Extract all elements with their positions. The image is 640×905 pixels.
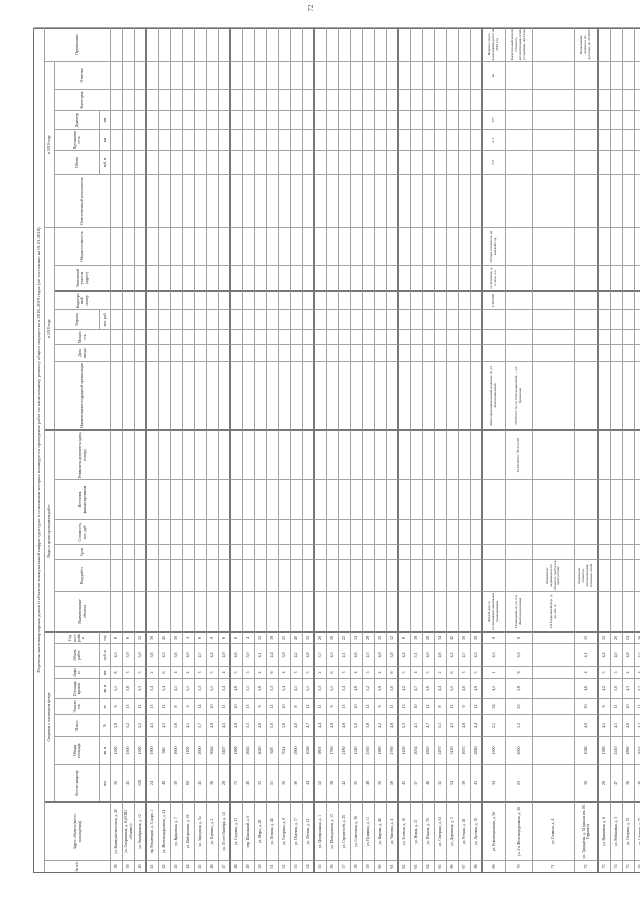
table-cell: 3,9: [123, 643, 135, 666]
table-cell: [255, 519, 267, 544]
table-cell: [599, 61, 611, 89]
table-cell: [135, 329, 147, 344]
table-cell: 3: [231, 666, 243, 678]
table-cell: 3,3: [267, 678, 279, 698]
table-cell: 4,4: [599, 643, 611, 666]
table-cell: [575, 61, 599, 89]
table-cell: [435, 290, 447, 309]
table-cell: 12: [387, 631, 399, 643]
table-cell: [207, 429, 219, 479]
table-cell: 6: [327, 666, 339, 678]
column-header: Реквизиты документа (дата, номер): [55, 429, 111, 479]
table-cell: [533, 309, 575, 329]
table-cell: 44: [303, 764, 315, 801]
table-cell: [423, 129, 435, 150]
table-cell: [447, 544, 459, 559]
table-cell: [207, 89, 219, 110]
table-cell: [435, 89, 447, 110]
table-cell: 5,8: [483, 150, 506, 174]
table-cell: [599, 544, 611, 559]
table-cell: 6: [231, 631, 243, 643]
table-cell: [387, 174, 399, 227]
table-cell: 5: [243, 666, 255, 678]
table-cell: [363, 479, 375, 519]
table-cell: [363, 519, 375, 544]
table-cell: ул. Тридцатая, д. 52 (школа им. М. Горьк…: [575, 801, 599, 860]
table-cell: 10: [411, 698, 423, 714]
table-cell: ул. Южная, д. 7б: [423, 801, 435, 860]
table-cell: [183, 361, 195, 429]
table-cell: 50: [255, 860, 267, 872]
table-cell: [135, 290, 147, 309]
table-cell: 2055: [635, 736, 640, 764]
table-cell: [315, 329, 327, 344]
table-cell: [219, 150, 231, 174]
table-cell: 69: [483, 860, 506, 872]
table-cell: [351, 290, 363, 309]
table-cell: 4,9: [375, 643, 387, 666]
table-cell: [375, 89, 387, 110]
table-cell: ул. Советская, д. 36: [351, 801, 363, 860]
table-cell: [111, 227, 123, 265]
table-cell: 8: [291, 698, 303, 714]
table-cell: [111, 265, 123, 290]
table-cell: [411, 27, 423, 61]
table-cell: ул. Революционная, д. 56: [483, 801, 506, 860]
column-header: Источник финансирования: [55, 479, 111, 519]
table-cell: [159, 429, 171, 479]
table-cell: [171, 129, 183, 150]
table-cell: [183, 227, 195, 265]
table-cell: [267, 544, 279, 559]
table-cell: [267, 27, 279, 61]
table-cell: [279, 344, 291, 361]
table-cell: [623, 309, 635, 329]
table-cell: [375, 544, 387, 559]
table-cell: [303, 27, 315, 61]
table-cell: [207, 591, 219, 631]
table-cell: [351, 519, 363, 544]
column-header: Площадь кровли: [55, 678, 100, 698]
table-cell: [231, 329, 243, 344]
table-cell: 35: [303, 631, 315, 643]
table-cell: [219, 89, 231, 110]
table-cell: [387, 61, 399, 89]
table-cell: [147, 89, 159, 110]
table-cell: [533, 329, 575, 344]
table-cell: 5,0: [611, 678, 623, 698]
table-cell: [399, 309, 411, 329]
table-cell: 6: [195, 631, 207, 643]
table-cell: [375, 61, 387, 89]
table-cell: 3,8: [387, 643, 399, 666]
table-cell: [207, 309, 219, 329]
table-cell: [195, 265, 207, 290]
table-cell: [267, 265, 279, 290]
table-cell: [159, 559, 171, 591]
table-cell: [399, 89, 411, 110]
table-cell: ул. 2-я Железнодорожная, д. 30: [506, 801, 533, 860]
table-cell: [459, 591, 471, 631]
table-cell: [303, 559, 315, 591]
table-cell: [635, 89, 640, 110]
table-cell: [147, 591, 159, 631]
table-cell: [123, 129, 135, 150]
table-cell: [483, 519, 506, 544]
table-cell: ул. Новая, д. 21: [411, 801, 423, 860]
table-cell: [471, 290, 483, 309]
table-cell: [171, 559, 183, 591]
table-cell: 4,0: [575, 714, 599, 736]
table-cell: [315, 429, 327, 479]
table-cell: 4,1: [255, 643, 267, 666]
table-cell: [399, 174, 411, 227]
table-cell: 30: [147, 631, 159, 643]
table-cell: [279, 329, 291, 344]
table-cell: [351, 27, 363, 61]
table-cell: [599, 344, 611, 361]
table-cell: [635, 227, 640, 265]
table-cell: 4,1: [411, 714, 423, 736]
table-cell: [423, 429, 435, 479]
table-cell: [623, 265, 635, 290]
table-cell: 3,6: [147, 643, 159, 666]
table-cell: [267, 89, 279, 110]
table-cell: 9: [255, 698, 267, 714]
table-cell: [506, 290, 533, 309]
table-cell: [243, 344, 255, 361]
table-cell: к-7: [483, 129, 506, 150]
table-cell: [635, 290, 640, 309]
table-cell: [435, 559, 447, 591]
table-cell: 4,4: [399, 643, 411, 666]
table-cell: [387, 89, 399, 110]
table-cell: [435, 61, 447, 89]
table-cell: [399, 591, 411, 631]
table-cell: [183, 290, 195, 309]
table-cell: [279, 174, 291, 227]
table-cell: [387, 329, 399, 344]
table-cell: [243, 329, 255, 344]
table-cell: [575, 591, 599, 631]
table-cell: 4,9: [471, 678, 483, 698]
table-cell: 4,0: [183, 643, 195, 666]
table-cell: [255, 174, 267, 227]
table-cell: [303, 290, 315, 309]
table-cell: 4,7: [423, 714, 435, 736]
table-cell: [447, 110, 459, 129]
table-cell: [423, 150, 435, 174]
table-cell: [219, 361, 231, 429]
table-cell: [387, 479, 399, 519]
table-cell: [411, 429, 423, 479]
table-cell: [243, 479, 255, 519]
table-cell: Помещение по ул. 2-я Железнодорожная: [506, 591, 533, 631]
table-cell: [411, 559, 423, 591]
table-cell: 62: [399, 860, 411, 872]
table-cell: ул. Центральная, д. 1: [315, 801, 327, 860]
table-cell: [611, 591, 623, 631]
table-cell: [623, 227, 635, 265]
table-cell: [303, 227, 315, 265]
table-cell: [435, 174, 447, 227]
table-cell: 12: [255, 631, 267, 643]
table-cell: 8: [111, 631, 123, 643]
table-cell: [411, 265, 423, 290]
table-cell: 3,8: [255, 678, 267, 698]
table-cell: [219, 27, 231, 61]
table-cell: [327, 129, 339, 150]
table-cell: 4,3: [471, 643, 483, 666]
table-cell: [339, 227, 351, 265]
table-cell: [411, 309, 423, 329]
table-cell: [423, 329, 435, 344]
table-cell: [327, 429, 339, 479]
table-cell: 72: [575, 860, 599, 872]
table-cell: [399, 61, 411, 89]
table-cell: 9: [111, 698, 123, 714]
table-cell: 13: [147, 698, 159, 714]
table-cell: [207, 27, 219, 61]
table-cell: 44: [183, 860, 195, 872]
table-cell: [611, 174, 623, 227]
table-cell: [506, 174, 533, 227]
table-cell: 11: [159, 698, 171, 714]
table-cell: [483, 89, 506, 110]
table-cell: [183, 329, 195, 344]
table-cell: ул. Дорожная, д. 2: [447, 801, 459, 860]
table-cell: 50: [459, 631, 471, 643]
table-cell: [231, 227, 243, 265]
table-cell: [459, 559, 471, 591]
table-cell: 940: [159, 736, 171, 764]
table-cell: [423, 89, 435, 110]
table-cell: [363, 227, 375, 265]
table-cell: [533, 174, 575, 227]
table-cell: [219, 479, 231, 519]
table-cell: [339, 544, 351, 559]
table-cell: [351, 150, 363, 174]
table-cell: 6: [123, 631, 135, 643]
table-cell: [267, 344, 279, 361]
table-cell: [635, 344, 640, 361]
table-cell: 4,8: [387, 714, 399, 736]
table-cell: ул. Лесная, д. 22: [303, 801, 315, 860]
table-cell: 3120: [447, 736, 459, 764]
table-cell: [635, 265, 640, 290]
table-cell: 4,8: [351, 678, 363, 698]
table-cell: [411, 110, 423, 129]
table-cell: 10: [351, 698, 363, 714]
table-cell: [111, 429, 123, 479]
table-cell: [387, 129, 399, 150]
table-cell: [599, 361, 611, 429]
table-cell: [623, 591, 635, 631]
table-cell: 4,7: [195, 643, 207, 666]
table-cell: [303, 344, 315, 361]
table-cell: Капитальный ремонт объектов, автоматизац…: [506, 27, 533, 61]
table-cell: [279, 27, 291, 61]
table-cell: 49: [159, 764, 171, 801]
table-cell: [411, 329, 423, 344]
column-header: № п/п: [45, 860, 111, 872]
table-cell: 4,6: [435, 643, 447, 666]
table-cell: [183, 110, 195, 129]
table-cell: [471, 329, 483, 344]
table-cell: [135, 429, 147, 479]
table-cell: [159, 544, 171, 559]
table-cell: 4: [183, 631, 195, 643]
table-cell: [243, 290, 255, 309]
table-cell: [351, 227, 363, 265]
table-cell: [123, 265, 135, 290]
table-cell: [506, 329, 533, 344]
table-cell: ул. Ленина, д. 44: [267, 801, 279, 860]
table-cell: 3,7: [315, 643, 327, 666]
table-cell: [363, 591, 375, 631]
column-header: Этажность: [55, 698, 100, 714]
table-cell: 65: [435, 860, 447, 872]
table-cell: [267, 479, 279, 519]
table-cell: [363, 429, 375, 479]
column-unit: шт.: [100, 764, 111, 801]
column-header: Наименование подрядной организации: [55, 361, 111, 429]
table-cell: [255, 309, 267, 329]
table-cell: [255, 150, 267, 174]
table-cell: [183, 150, 195, 174]
table-cell: [255, 227, 267, 265]
table-cell: [423, 227, 435, 265]
table-cell: [267, 150, 279, 174]
table-cell: [291, 429, 303, 479]
table-cell: [303, 329, 315, 344]
table-cell: [471, 361, 483, 429]
table-cell: 11: [611, 698, 623, 714]
table-cell: [623, 361, 635, 429]
table-cell: [303, 479, 315, 519]
table-cell: [599, 591, 611, 631]
table-cell: [171, 27, 183, 61]
table-cell: [635, 150, 640, 174]
table-cell: [611, 361, 623, 429]
table-cell: [447, 265, 459, 290]
table-cell: 74: [611, 860, 623, 872]
table-cell: [171, 227, 183, 265]
table-cell: [623, 544, 635, 559]
table-cell: [623, 150, 635, 174]
table-cell: [111, 27, 123, 61]
table-cell: 1049: [303, 736, 315, 764]
table-cell: 4,8: [303, 643, 315, 666]
table-cell: [533, 736, 575, 764]
column-unit: шт.: [100, 666, 111, 678]
table-cell: [435, 479, 447, 519]
table-cell: [575, 309, 599, 329]
table-cell: [159, 361, 171, 429]
table-cell: [291, 174, 303, 227]
table-cell: [111, 309, 123, 329]
column-header: Примечание: [45, 27, 111, 61]
table-cell: 4,6: [231, 643, 243, 666]
table-cell: 4: [279, 666, 291, 678]
table-cell: 51: [267, 764, 279, 801]
table-cell: [387, 559, 399, 591]
table-cell: [599, 309, 611, 329]
table-cell: [147, 227, 159, 265]
table-cell: 4,0: [423, 643, 435, 666]
table-cell: 45: [195, 860, 207, 872]
table-cell: 1: [483, 666, 506, 678]
table-cell: [231, 150, 243, 174]
table-cell: 16: [327, 631, 339, 643]
table-cell: 5,0: [351, 714, 363, 736]
table-cell: [423, 309, 435, 329]
table-cell: 5,1: [303, 678, 315, 698]
table-cell: [471, 110, 483, 129]
table-cell: [255, 27, 267, 61]
table-cell: [363, 110, 375, 129]
table-cell: [207, 227, 219, 265]
table-cell: [195, 61, 207, 89]
table-cell: [459, 227, 471, 265]
column-header: Объем: [55, 150, 100, 174]
table-cell: [423, 61, 435, 89]
table-cell: [423, 361, 435, 429]
table-cell: [399, 344, 411, 361]
table-cell: [611, 559, 623, 591]
table-cell: ул. Полевая, д. 17: [291, 801, 303, 860]
table-cell: 48: [231, 860, 243, 872]
table-cell: [111, 361, 123, 429]
table-cell: пер. Школьный, д. 6: [243, 801, 255, 860]
table-cell: [291, 559, 303, 591]
table-cell: 54: [447, 764, 459, 801]
table-cell: [435, 129, 447, 150]
table-cell: 5,1: [435, 714, 447, 736]
table-cell: [147, 361, 159, 429]
table-cell: [533, 678, 575, 698]
table-cell: [195, 174, 207, 227]
table-cell: [399, 265, 411, 290]
table-cell: [447, 227, 459, 265]
table-cell: [375, 227, 387, 265]
table-cell: [183, 544, 195, 559]
table-cell: 4,1: [339, 643, 351, 666]
table-cell: [447, 591, 459, 631]
table-cell: [243, 361, 255, 429]
table-cell: 1760: [327, 736, 339, 764]
table-cell: [363, 344, 375, 361]
table-cell: [533, 110, 575, 129]
table-cell: [231, 344, 243, 361]
table-cell: ул. Спортивная, д. 8 (СОШ «Олимп»): [123, 801, 135, 860]
table-cell: [447, 174, 459, 227]
table-cell: 11: [315, 698, 327, 714]
table-cell: 4020: [255, 736, 267, 764]
table-cell: [123, 544, 135, 559]
table-cell: 64: [423, 860, 435, 872]
table-cell: 3,9: [279, 643, 291, 666]
table-cell: [279, 559, 291, 591]
table-cell: 4,6: [623, 714, 635, 736]
table-cell: [506, 519, 533, 544]
table-cell: 36: [623, 764, 635, 801]
table-cell: ул. Баумана, д. 2: [207, 801, 219, 860]
table-cell: [435, 110, 447, 129]
table-cell: 9: [375, 698, 387, 714]
column-header: Срок: [55, 544, 111, 559]
table-cell: 24: [147, 764, 159, 801]
